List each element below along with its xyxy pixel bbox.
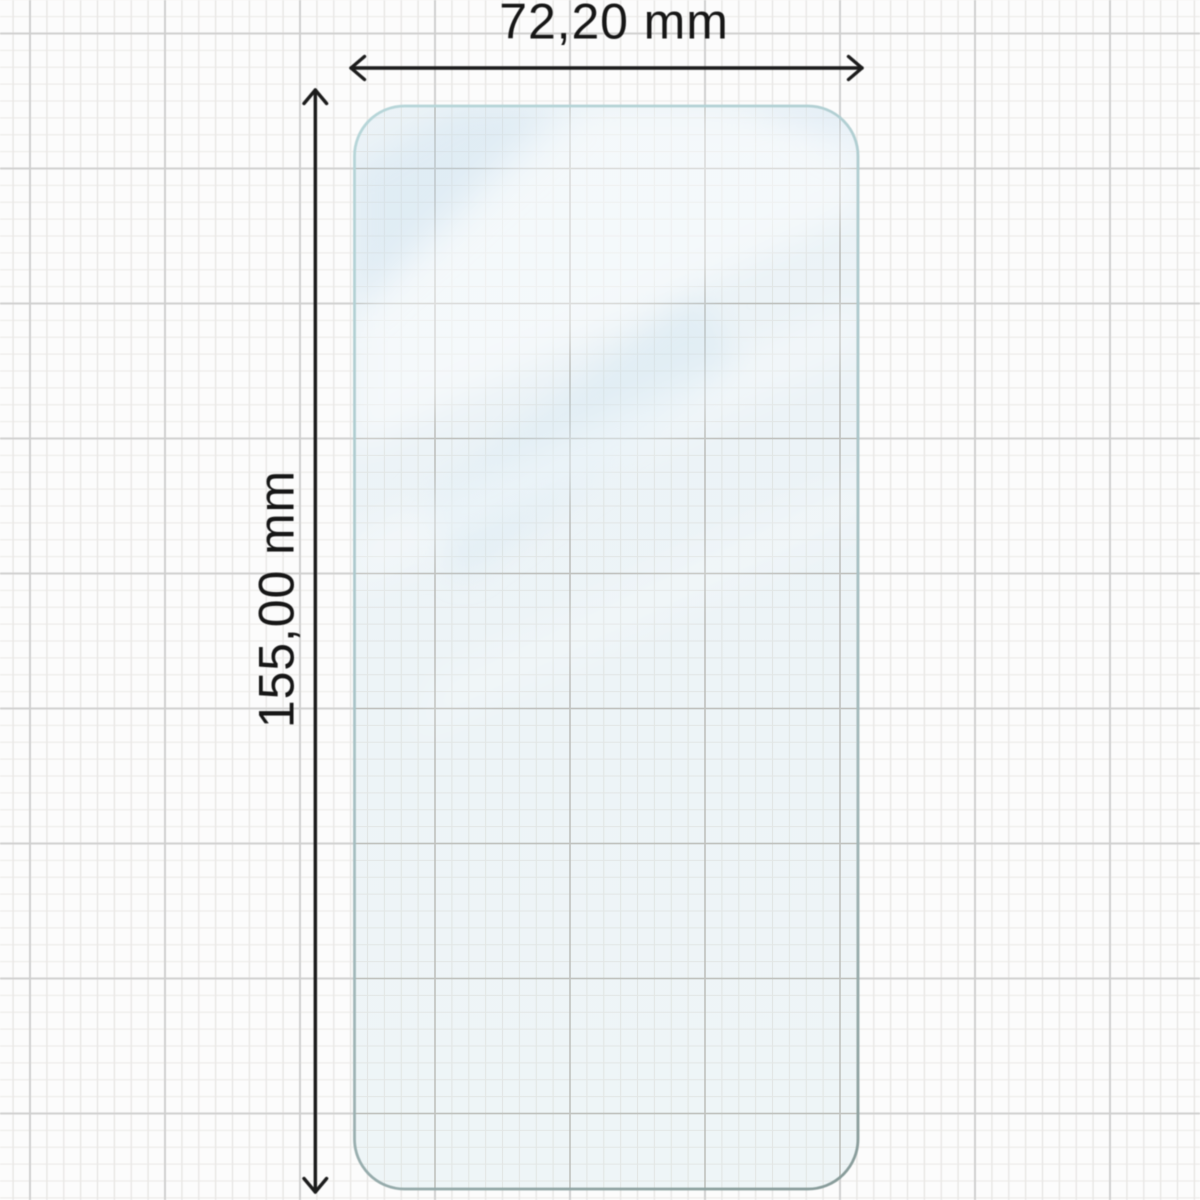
svg-text:155,00 mm: 155,00 mm	[249, 470, 305, 728]
svg-text:72,20 mm: 72,20 mm	[499, 0, 729, 50]
